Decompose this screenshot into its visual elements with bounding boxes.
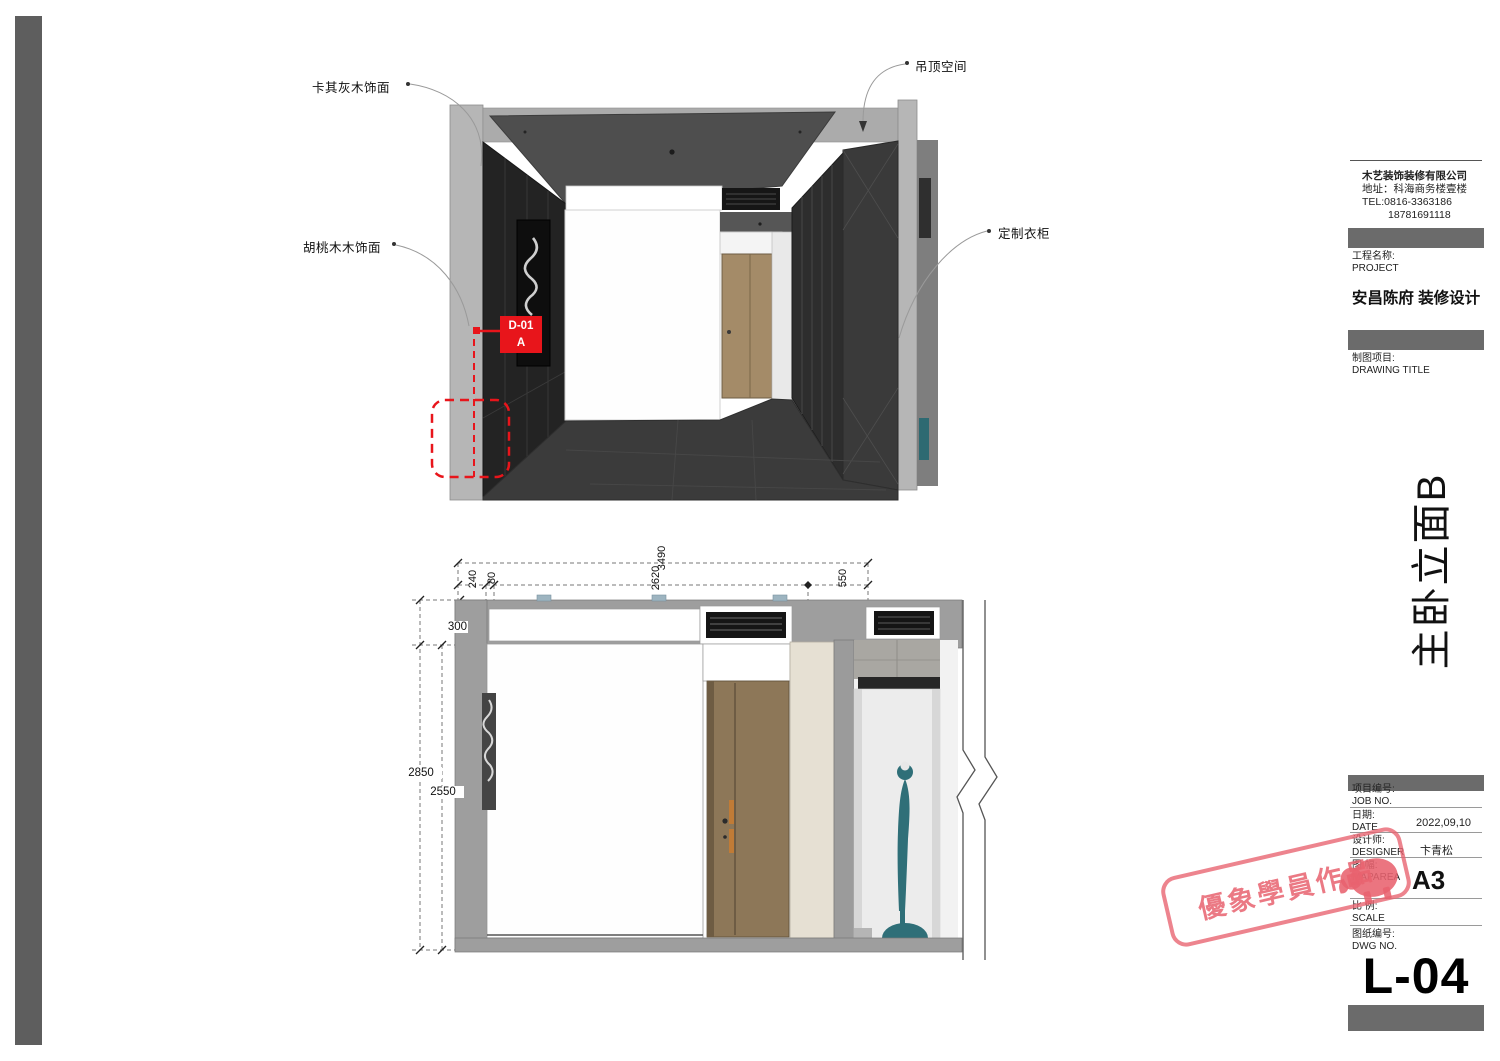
elevation-view <box>405 545 1000 965</box>
dim-total-height: 2850 <box>400 767 442 779</box>
elev-closet-interior <box>854 689 940 940</box>
elev-floor <box>455 938 962 952</box>
drawing-title-label: 制图项目: DRAWING TITLE <box>1352 353 1430 377</box>
company-tel2: 18781691118 <box>1362 209 1467 222</box>
row-job-no: 项目编号: JOB NO. <box>1352 784 1395 808</box>
elev-cove-recess <box>489 609 700 641</box>
label-khaki-wood-finish: 卡其灰木饰面 <box>312 77 390 96</box>
ceiling-arrow <box>859 121 867 132</box>
row-job-cn: 项目编号: <box>1352 784 1395 796</box>
project-label-en: PROJECT <box>1352 263 1399 275</box>
dim-seg2: 80 <box>486 556 498 600</box>
company-info: 木艺装饰装修有限公司 地址：科海商务楼壹楼 TEL:0816-3363186 1… <box>1362 170 1467 222</box>
drawing-sheet: 卡其灰木饰面 吊顶空间 胡桃木木饰面 定制衣柜 D-01 A <box>0 0 1500 1061</box>
detail-dashed-region <box>432 400 509 477</box>
dim-clear-height: 2550 <box>422 786 464 798</box>
elev-door-lock2 <box>723 835 727 839</box>
maparea-value: A3 <box>1412 865 1445 896</box>
project-label-cn: 工程名称: <box>1352 251 1399 263</box>
label-custom-wardrobe: 定制衣柜 <box>998 223 1050 242</box>
elev-door-handle2 <box>729 829 734 853</box>
elev-partition <box>834 640 854 950</box>
row-rule <box>1350 807 1482 808</box>
project-name: 安昌陈府 装修设计 <box>1348 286 1484 308</box>
company-address: 地址：科海商务楼壹楼 <box>1362 183 1467 196</box>
elev-beige-panel <box>790 642 834 938</box>
row-dwg-cn: 图纸编号: <box>1352 929 1397 941</box>
project-label: 工程名称: PROJECT <box>1352 251 1399 275</box>
label-walnut-wood-finish: 胡桃木木饰面 <box>303 237 381 256</box>
company-tel: TEL:0816-3363186 <box>1362 196 1467 209</box>
stamp-elephant-icon <box>1332 838 1412 918</box>
detail-anchor <box>473 327 480 334</box>
divider-bar <box>1348 1005 1484 1031</box>
elev-door-edge <box>707 681 714 937</box>
dim-seg1: 240 <box>467 557 479 601</box>
dim-seg4: 550 <box>837 556 849 600</box>
elev-vent-grille <box>706 612 786 638</box>
company-name: 木艺装饰装修有限公司 <box>1362 170 1467 183</box>
elev-art-sliver <box>482 693 496 810</box>
break-lines <box>957 600 997 960</box>
elev-transom <box>703 644 790 681</box>
divider-bar <box>1348 228 1484 248</box>
elev-door <box>707 681 789 937</box>
dimension-diamond <box>804 581 812 589</box>
detail-code: D-01 <box>500 318 542 335</box>
drawing-label-en: DRAWING TITLE <box>1352 365 1430 377</box>
drawing-label-cn: 制图项目: <box>1352 353 1430 365</box>
date-value: 2022,09,10 <box>1416 817 1471 829</box>
row-rule <box>1350 925 1482 926</box>
detail-callout-box: D-01 A <box>500 316 542 353</box>
elev-white-panel <box>487 644 703 938</box>
row-date-cn: 日期: <box>1352 810 1378 822</box>
label-ceiling-space: 吊顶空间 <box>915 56 967 75</box>
elev-dark-shelf <box>858 677 940 689</box>
dim-seg3: 2620 <box>650 556 662 600</box>
designer-value: 卞青松 <box>1420 842 1453 858</box>
sheet-code: L-04 <box>1348 947 1484 1005</box>
elev-door-lock <box>722 818 727 823</box>
elev-door-handle <box>729 800 734 824</box>
dim-drop: 300 <box>434 621 468 633</box>
divider-bar <box>1348 330 1484 350</box>
drawing-title-vertical: 主卧立面B <box>1399 471 1445 671</box>
titleblock-top-rule <box>1350 160 1482 161</box>
detail-sub: A <box>500 335 542 352</box>
